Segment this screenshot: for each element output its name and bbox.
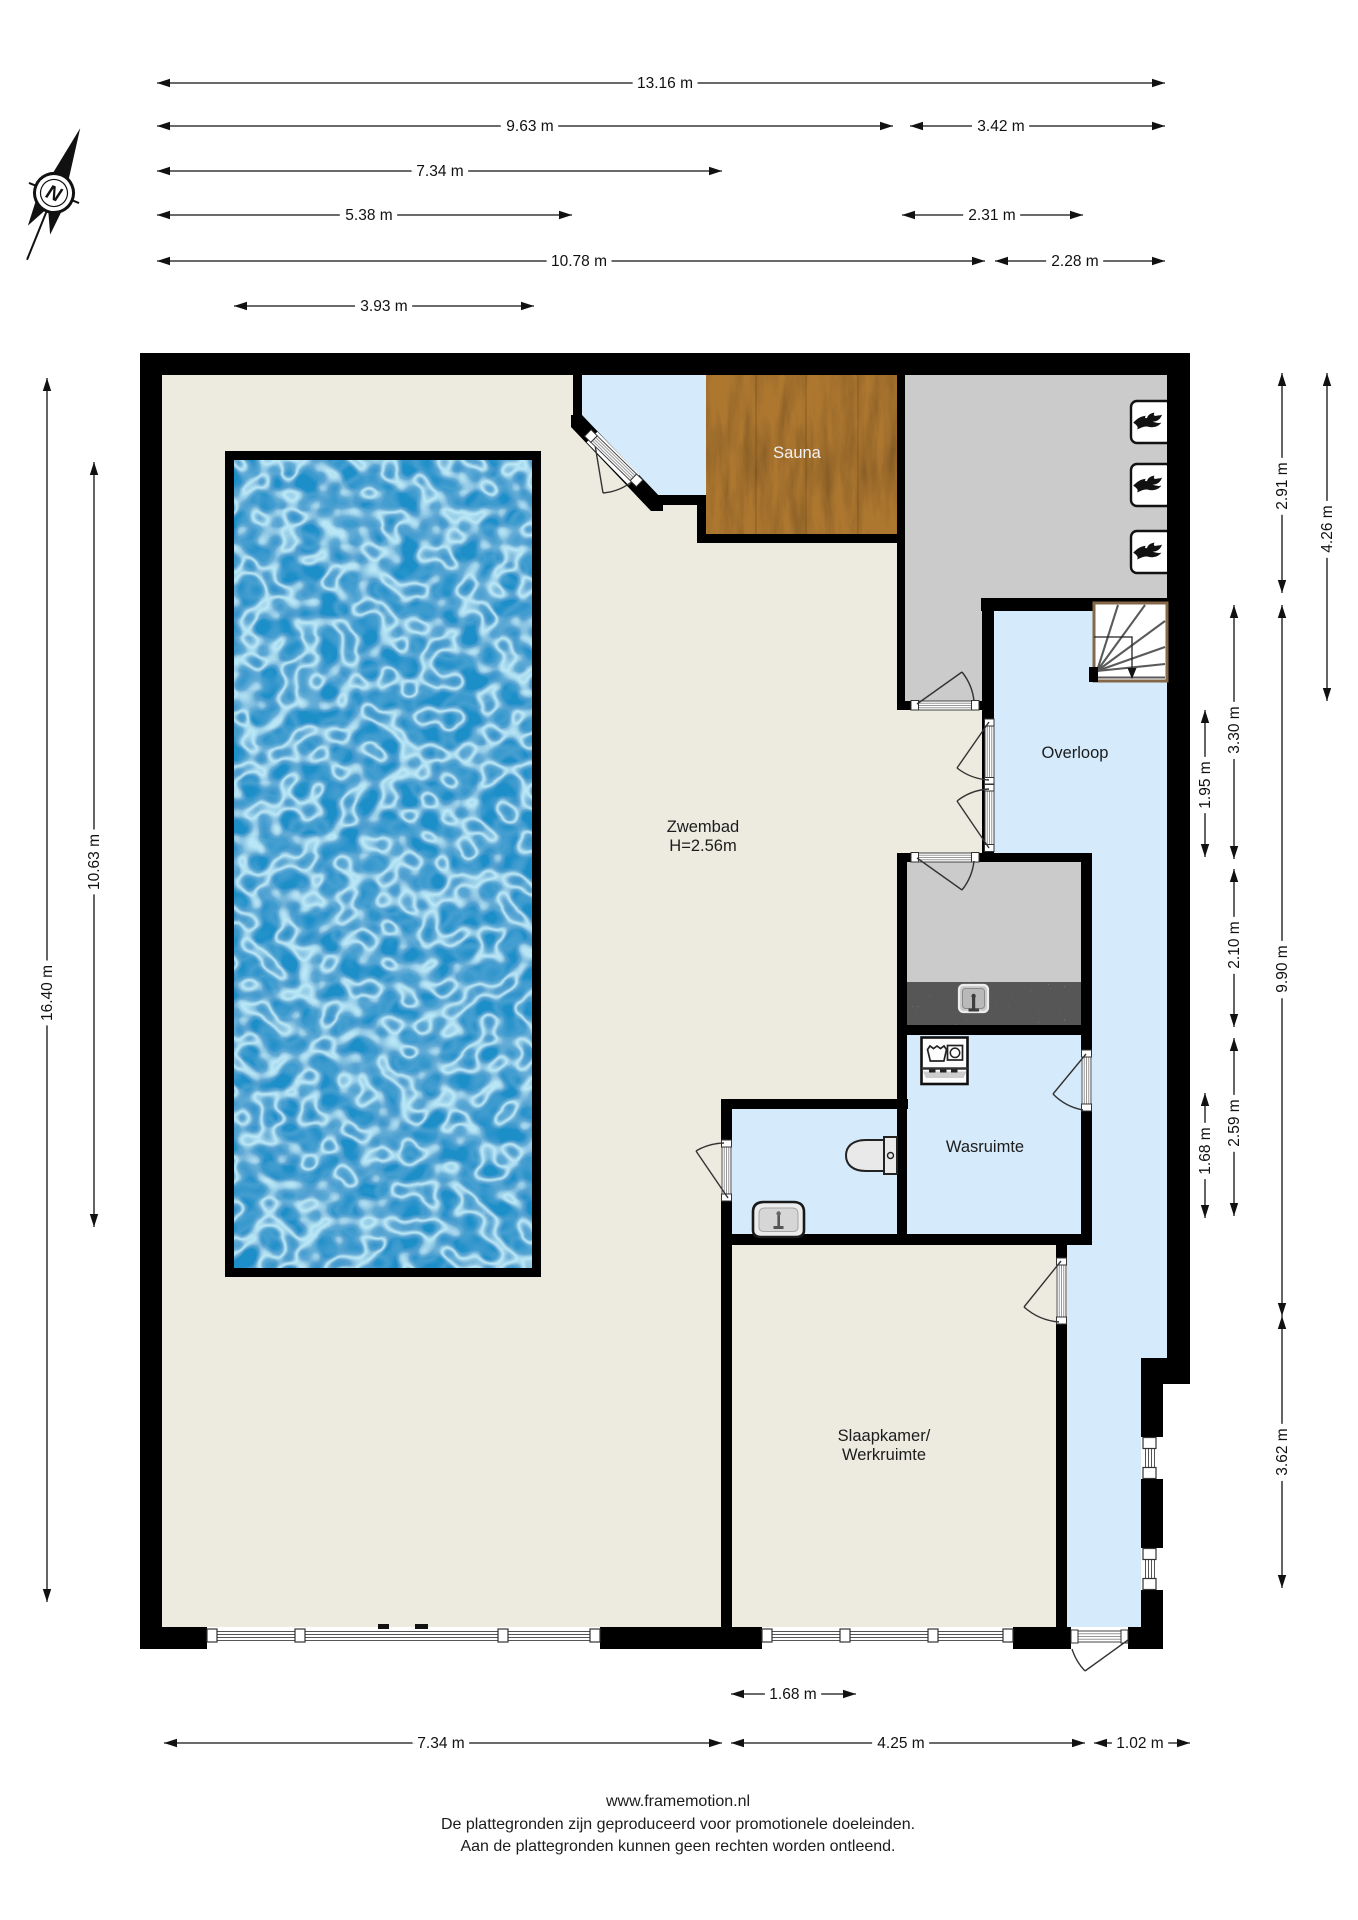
svg-text:Overloop: Overloop bbox=[1042, 744, 1109, 762]
svg-text:De plattegronden zijn geproduc: De plattegronden zijn geproduceerd voor … bbox=[441, 1816, 915, 1833]
svg-text:5.38 m: 5.38 m bbox=[345, 207, 392, 224]
svg-text:Werkruimte: Werkruimte bbox=[842, 1446, 926, 1464]
svg-text:4.26 m: 4.26 m bbox=[1319, 505, 1336, 552]
svg-text:4.25 m: 4.25 m bbox=[877, 1735, 924, 1752]
svg-text:3.30 m: 3.30 m bbox=[1226, 706, 1243, 753]
svg-text:9.90 m: 9.90 m bbox=[1274, 945, 1291, 992]
svg-text:www.framemotion.nl: www.framemotion.nl bbox=[605, 1793, 750, 1810]
svg-text:9.63 m: 9.63 m bbox=[506, 118, 553, 135]
svg-text:Wasruimte: Wasruimte bbox=[946, 1138, 1024, 1156]
svg-text:1.68 m: 1.68 m bbox=[1197, 1127, 1214, 1174]
svg-text:16.40 m: 16.40 m bbox=[39, 965, 56, 1021]
svg-text:1.02 m: 1.02 m bbox=[1116, 1735, 1163, 1752]
svg-text:3.93 m: 3.93 m bbox=[360, 298, 407, 315]
svg-text:7.34 m: 7.34 m bbox=[416, 163, 463, 180]
svg-text:1.95 m: 1.95 m bbox=[1197, 761, 1214, 808]
svg-text:10.78 m: 10.78 m bbox=[551, 253, 607, 270]
svg-text:2.10 m: 2.10 m bbox=[1226, 921, 1243, 968]
svg-text:Sauna: Sauna bbox=[773, 444, 822, 462]
svg-text:Aan de plattegronden kunnen ge: Aan de plattegronden kunnen geen rechten… bbox=[460, 1838, 895, 1855]
svg-text:13.16 m: 13.16 m bbox=[637, 75, 693, 92]
svg-text:10.63 m: 10.63 m bbox=[86, 834, 103, 890]
svg-text:Zwembad: Zwembad bbox=[667, 818, 739, 836]
svg-text:2.59 m: 2.59 m bbox=[1226, 1099, 1243, 1146]
svg-text:2.91 m: 2.91 m bbox=[1274, 462, 1291, 509]
svg-text:Slaapkamer/: Slaapkamer/ bbox=[838, 1427, 931, 1445]
svg-text:H=2.56m: H=2.56m bbox=[669, 837, 736, 855]
svg-text:3.42 m: 3.42 m bbox=[977, 118, 1024, 135]
svg-text:1.68 m: 1.68 m bbox=[769, 1686, 816, 1703]
svg-text:3.62 m: 3.62 m bbox=[1274, 1428, 1291, 1475]
svg-text:2.28 m: 2.28 m bbox=[1051, 253, 1098, 270]
svg-text:7.34 m: 7.34 m bbox=[417, 1735, 464, 1752]
svg-text:2.31 m: 2.31 m bbox=[968, 207, 1015, 224]
